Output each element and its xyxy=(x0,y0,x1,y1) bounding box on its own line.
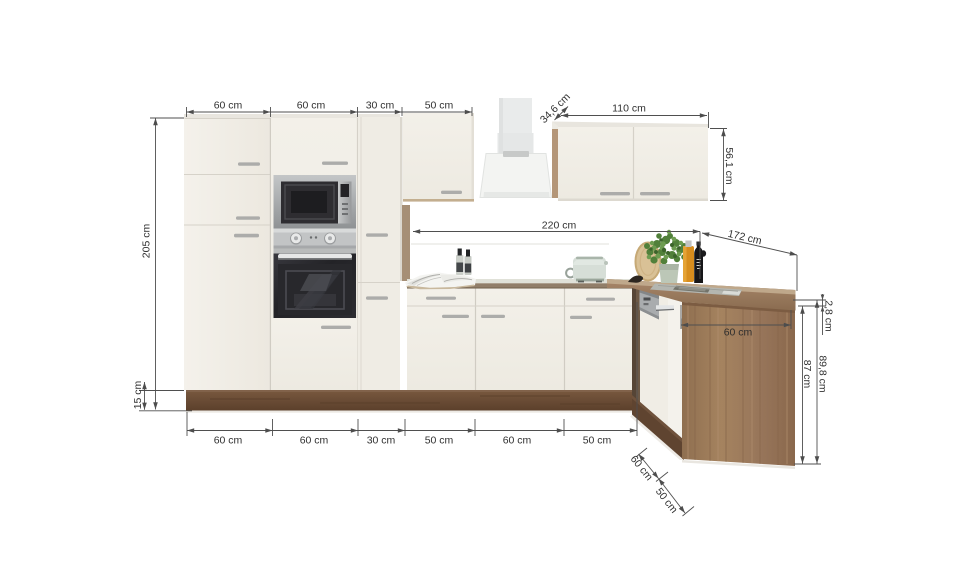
svg-text:110 cm: 110 cm xyxy=(612,103,646,115)
svg-text:50 cm: 50 cm xyxy=(425,435,454,447)
svg-text:60 cm: 60 cm xyxy=(297,100,326,112)
svg-text:30 cm: 30 cm xyxy=(366,100,395,112)
svg-text:87 cm: 87 cm xyxy=(801,360,813,389)
svg-text:220 cm: 220 cm xyxy=(542,220,577,232)
svg-text:205 cm: 205 cm xyxy=(141,224,153,259)
svg-text:60 cm: 60 cm xyxy=(214,100,243,112)
svg-text:2,8 cm: 2,8 cm xyxy=(823,300,835,332)
svg-text:50 cm: 50 cm xyxy=(425,100,454,112)
svg-text:60 cm: 60 cm xyxy=(503,435,532,447)
svg-text:60 cm: 60 cm xyxy=(214,435,243,447)
svg-text:50 cm: 50 cm xyxy=(583,435,612,447)
svg-text:60 cm: 60 cm xyxy=(724,327,753,339)
svg-text:60 cm: 60 cm xyxy=(300,435,329,447)
svg-text:89,8 cm: 89,8 cm xyxy=(817,355,829,393)
svg-text:30 cm: 30 cm xyxy=(367,435,396,447)
svg-text:15 cm: 15 cm xyxy=(132,380,144,409)
svg-text:56,1 cm: 56,1 cm xyxy=(723,147,735,185)
